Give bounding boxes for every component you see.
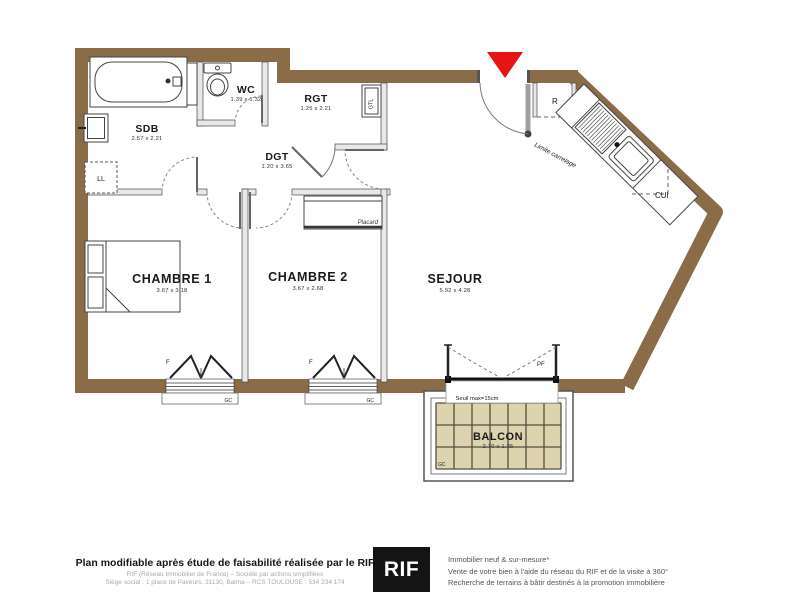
pf-label: PF	[537, 362, 545, 368]
window-chambre2: F GC	[305, 356, 381, 404]
entry-jamb-left	[477, 70, 480, 83]
threshold: Seuil max=15cm	[446, 381, 558, 403]
footer-left-block: Plan modifiable après étude de faisabili…	[65, 557, 385, 586]
wall-rgt-right	[381, 83, 387, 150]
rif-logo: RIF	[373, 547, 430, 592]
footer-right-block: Immobilier neuf & sur-mesure* Vente de v…	[448, 554, 668, 589]
entrance-door-swing	[480, 83, 528, 134]
window1-frame	[166, 379, 234, 393]
balcony-gc-label: GC	[438, 462, 446, 468]
bathroom-cabinet	[187, 63, 197, 105]
balcony-french-door: PF	[444, 345, 560, 383]
chambre1-label: CHAMBRE 1	[132, 272, 212, 286]
bathtub	[90, 57, 187, 107]
closet-placard: Placard	[304, 196, 382, 229]
kitchen-counter	[556, 84, 698, 225]
rgt-door-swing	[322, 147, 335, 177]
window1-gc-label: GC	[225, 398, 233, 404]
rgt-label: RGT	[304, 93, 328, 105]
sdb-dims: 2.57 x 2.21	[132, 136, 163, 142]
cui-label: CUI	[655, 191, 669, 200]
chambre2-door-swing	[256, 192, 292, 228]
window2-f-label: F	[309, 360, 313, 366]
balcony-label: BALCON	[473, 431, 523, 443]
wall-wc-bottom	[197, 120, 235, 126]
chambre2-dims: 3.67 x 2.68	[293, 286, 324, 292]
wall-r-nook-left	[533, 83, 537, 117]
window1-f-label: F	[166, 360, 170, 366]
entrance-marker	[487, 52, 523, 78]
window-chambre1: F GC	[162, 356, 238, 404]
bathtub-drain	[166, 79, 171, 84]
wall-sdb-wc	[197, 62, 203, 126]
footer-company-line: RIF (Réseau Immobilier de France) – Soci…	[65, 571, 385, 578]
footer-disclaimer: Plan modifiable après étude de faisabili…	[65, 557, 385, 569]
floor-plan: BALCON 2.70 x 1.35 GC Seuil max=15cm	[0, 0, 800, 545]
wc-dims: 1.39 x 1.32	[231, 97, 262, 103]
window1-center-tick	[198, 368, 204, 378]
footer-service-1: Immobilier neuf & sur-mesure*	[448, 554, 668, 566]
chambre1-dims: 3.67 x 3.18	[157, 288, 188, 294]
limite-carrelage-label: Limite carrelage	[533, 142, 577, 170]
rgt-dims: 1.25 x 2.21	[301, 106, 332, 112]
wall-top-b	[277, 70, 480, 83]
sdb-door-swing	[162, 157, 197, 192]
chambre2-label: CHAMBRE 2	[268, 270, 348, 284]
footer-service-3: Recherche de terrains à bâtir destinés à…	[448, 577, 668, 589]
washing-machine-label: LL	[97, 176, 105, 183]
wall-diagonal-right	[627, 212, 716, 387]
footer: Plan modifiable après étude de faisabili…	[0, 545, 800, 600]
window2-frame	[309, 379, 377, 393]
balcony: BALCON 2.70 x 1.35 GC	[424, 391, 573, 481]
entry-jamb-right	[527, 70, 530, 83]
footer-address-line: Siège social : 1 place de Paveurs, 31130…	[65, 579, 385, 586]
wall-corner	[709, 205, 723, 219]
window2-gc-label: GC	[367, 398, 375, 404]
sejour-dims: 5.92 x 4.28	[440, 288, 471, 294]
gtl-closet: GTL	[362, 85, 381, 117]
refrigerator-label: R	[552, 97, 558, 106]
wall-corridor-c	[292, 189, 390, 195]
washing-machine: LL	[85, 162, 117, 193]
sejour-label: SEJOUR	[427, 272, 482, 286]
wc-label: WC	[237, 84, 255, 96]
wall-chambre1-chambre2	[242, 189, 248, 382]
toilet	[204, 63, 231, 96]
gtl-label: GTL	[369, 99, 375, 110]
wall-left	[75, 48, 88, 393]
pf-swing-left	[448, 347, 501, 378]
chambre1-door-swing	[207, 192, 243, 228]
footer-service-2: Vente de votre bien à l'aide du réseau d…	[448, 566, 668, 578]
sdb-label: SDB	[135, 123, 158, 135]
placard-label: Placard	[358, 220, 379, 226]
pf-swing-right	[503, 347, 556, 378]
balcony-dims: 2.70 x 1.35	[483, 444, 514, 450]
wall-corridor-a	[197, 189, 207, 195]
dgt-dims: 1.20 x 3.65	[262, 164, 293, 170]
floor-plan-page: BALCON 2.70 x 1.35 GC Seuil max=15cm	[0, 0, 800, 600]
dgt-label: DGT	[265, 151, 289, 163]
window2-center-tick	[341, 368, 347, 378]
rgt-door-leaf	[292, 147, 322, 177]
threshold-label: Seuil max=15cm	[455, 396, 498, 402]
hall-door-swing	[345, 150, 384, 189]
